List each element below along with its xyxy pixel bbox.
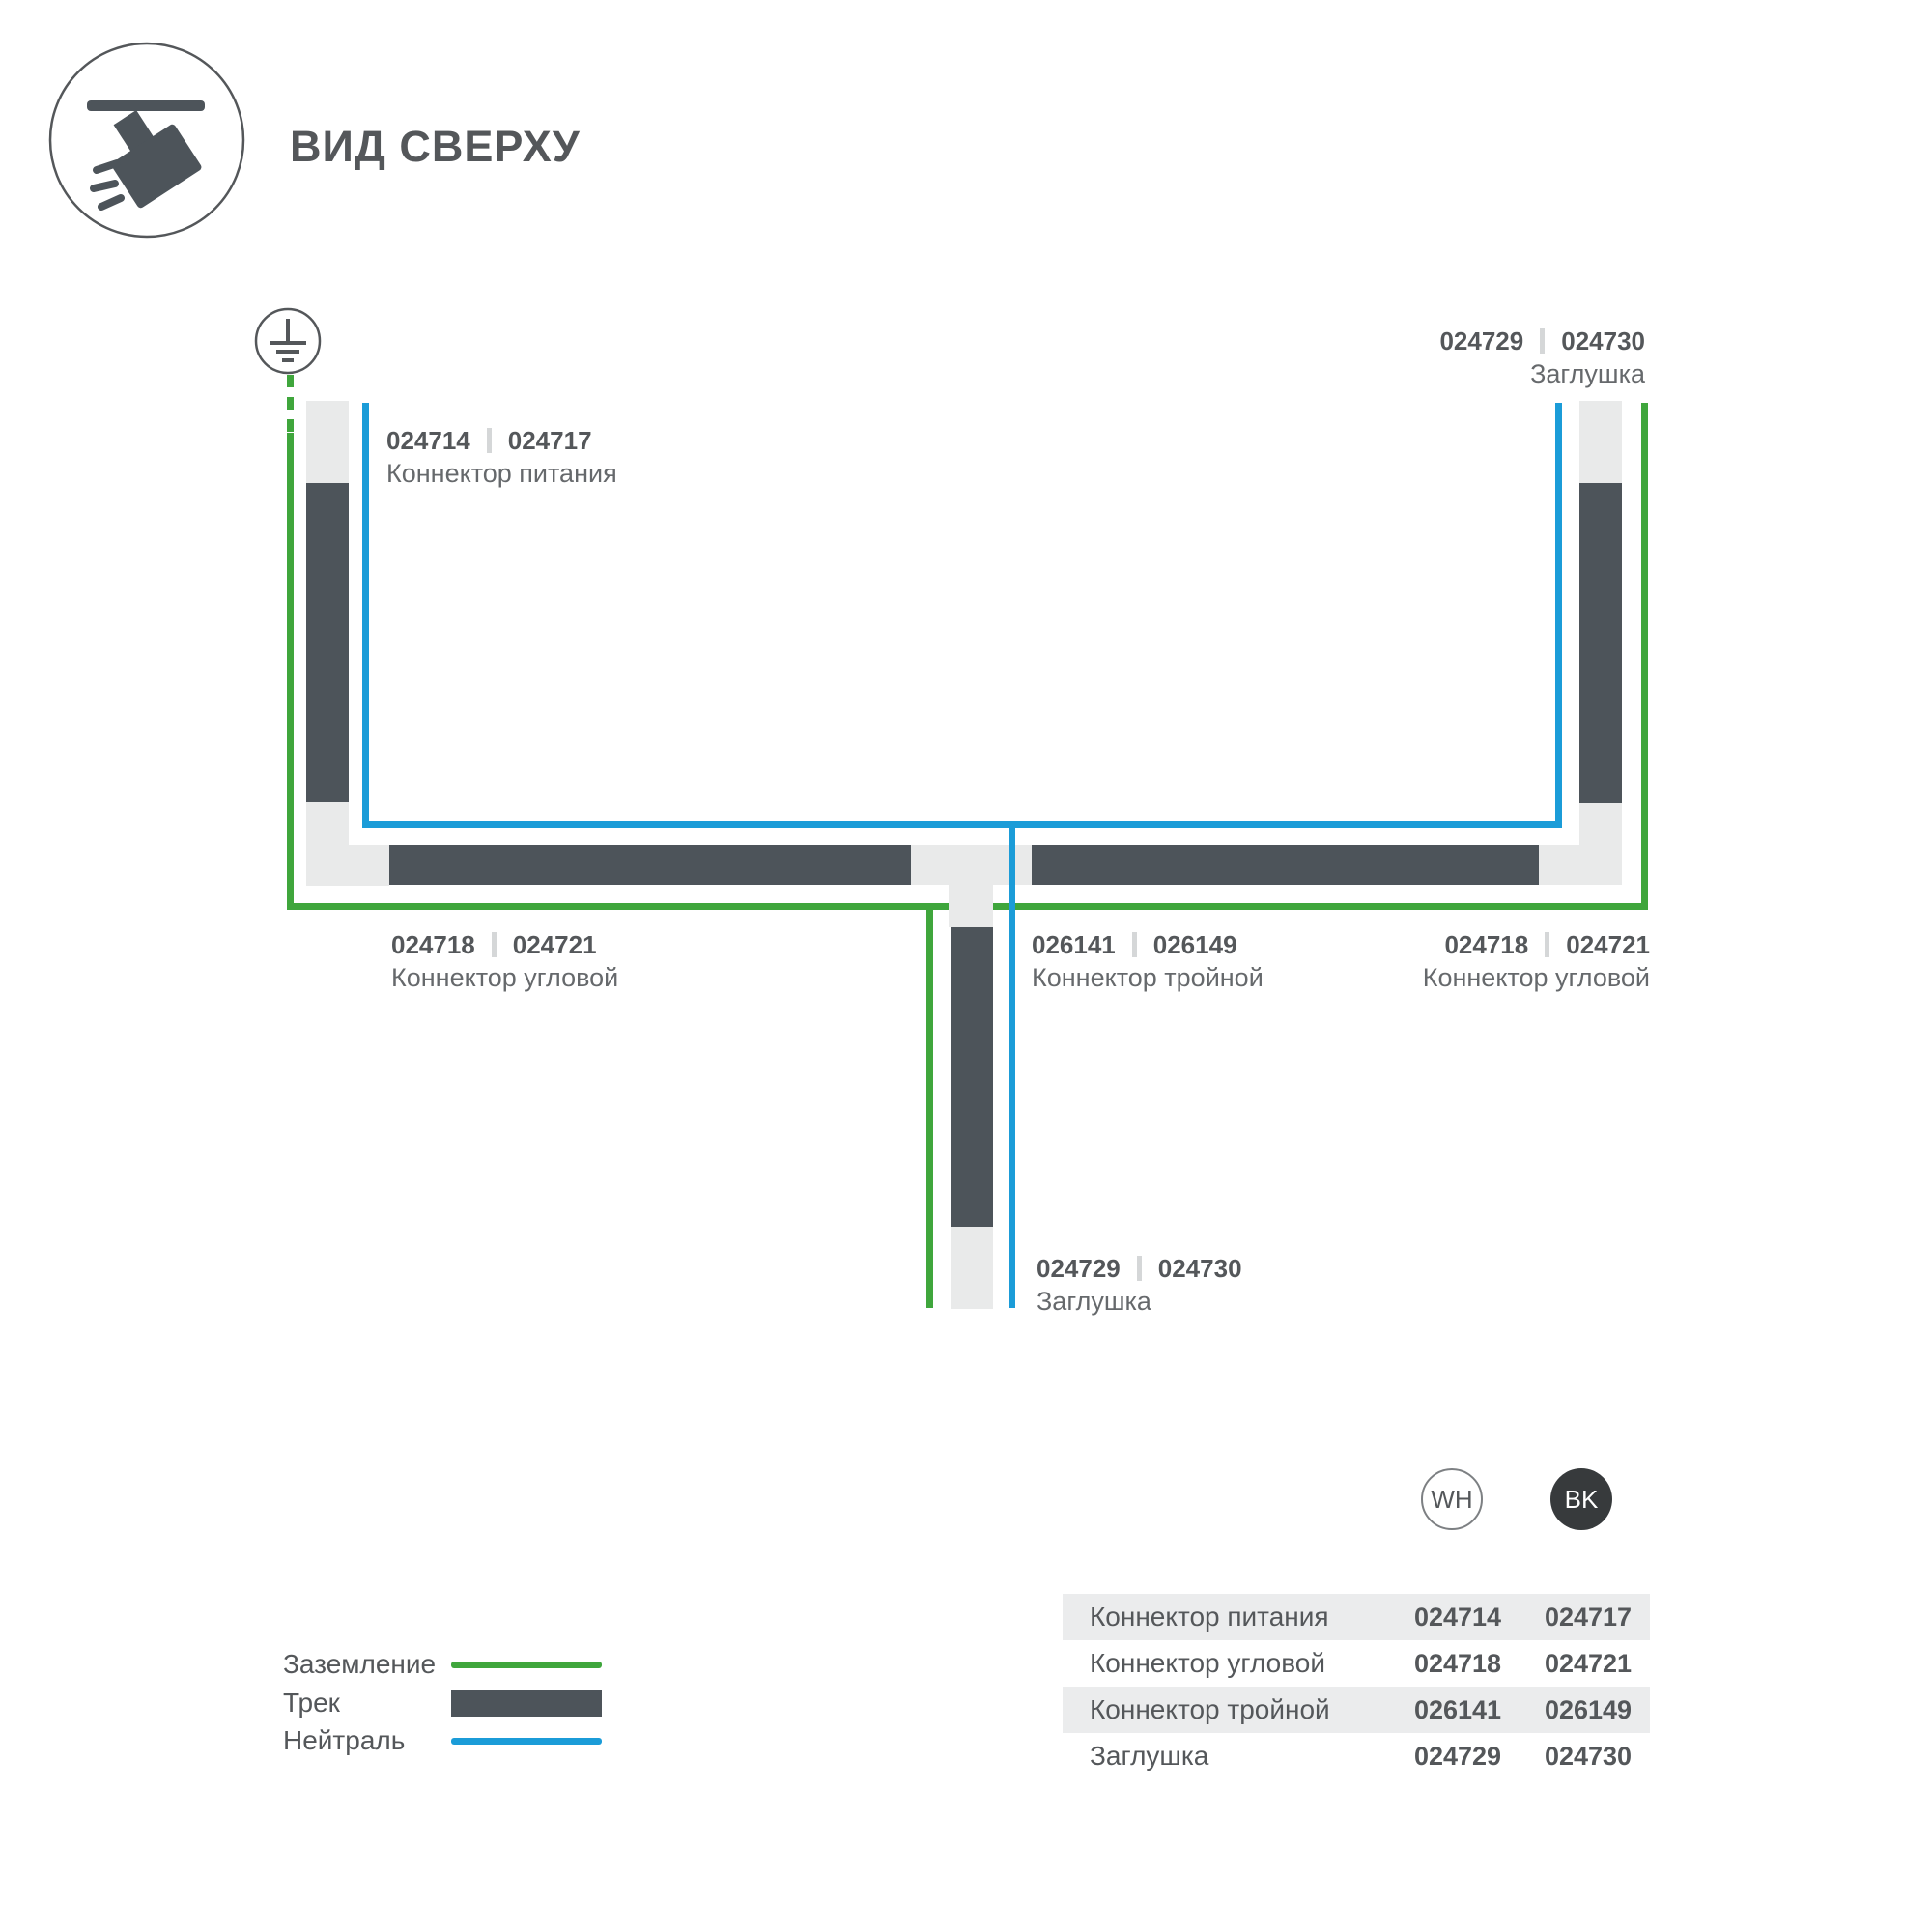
- legend-label-track: Трек: [283, 1687, 340, 1719]
- ground-wire-dashed-segment: [287, 375, 294, 435]
- corner-connector-left-horizontal: [306, 845, 389, 886]
- part-codes: 024714024717: [386, 425, 617, 456]
- row-code-bk: 024717: [1530, 1594, 1646, 1640]
- part-label-corner-connector-right: 024718024721 Коннектор угловой: [1423, 929, 1650, 995]
- part-label-power-connector: 024714024717 Коннектор питания: [386, 425, 617, 491]
- part-label-endcap-top: 024729024730 Заглушка: [1439, 326, 1645, 391]
- page-title: ВИД СВЕРХУ: [290, 122, 581, 172]
- row-code-wh: 024714: [1400, 1594, 1516, 1640]
- page: ВИД СВЕРХУ 024714024717 Коннектор питани…: [0, 0, 1932, 1932]
- part-name: Коннектор угловой: [1423, 960, 1650, 995]
- neutral-wire-branch-vertical: [1009, 821, 1015, 1308]
- divider: [1137, 1256, 1142, 1281]
- row-name: Заглушка: [1090, 1733, 1208, 1779]
- table-row: Коннектор угловой 024718 024721: [1063, 1640, 1650, 1687]
- legend-track-bar: [451, 1690, 602, 1717]
- row-name: Коннектор питания: [1090, 1594, 1329, 1640]
- neutral-wire-left-vertical: [362, 403, 369, 828]
- ground-wire-right-vertical: [1641, 403, 1648, 910]
- part-codes: 024718024721: [391, 929, 618, 960]
- divider: [1545, 932, 1549, 957]
- part-name: Заглушка: [1037, 1284, 1242, 1319]
- row-code-wh: 024718: [1400, 1640, 1516, 1687]
- part-codes: 024729024730: [1037, 1253, 1242, 1284]
- row-code-bk: 024730: [1530, 1733, 1646, 1779]
- divider: [1132, 932, 1137, 957]
- part-label-endcap-bottom: 024729024730 Заглушка: [1037, 1253, 1242, 1319]
- row-code-wh: 026141: [1400, 1687, 1516, 1733]
- legend-label-neutral: Нейтраль: [283, 1724, 405, 1757]
- track-left-vertical: [306, 483, 349, 802]
- track-right-vertical: [1579, 483, 1622, 803]
- track-endcap-bottom: [951, 1227, 993, 1309]
- divider: [492, 932, 497, 957]
- triple-connector-stem: [949, 884, 993, 927]
- ground-wire-branch-vertical: [926, 909, 933, 1308]
- row-name: Коннектор угловой: [1090, 1640, 1325, 1687]
- variant-badge-black: BK: [1550, 1468, 1612, 1530]
- table-row: Коннектор питания 024714 024717: [1063, 1594, 1650, 1640]
- corner-connector-right-vertical: [1579, 803, 1622, 885]
- part-codes: 026141026149: [1032, 929, 1264, 960]
- part-label-triple-connector: 026141026149 Коннектор тройной: [1032, 929, 1264, 995]
- neutral-wire-right-vertical: [1555, 403, 1562, 828]
- legend-label-ground: Заземление: [283, 1648, 436, 1681]
- neutral-wire-horizontal: [362, 821, 1562, 828]
- track-horizontal-left: [389, 845, 911, 885]
- variant-badge-white: WH: [1421, 1468, 1483, 1530]
- divider: [1540, 328, 1545, 354]
- legend-neutral-line: [451, 1738, 602, 1745]
- part-name: Коннектор питания: [386, 456, 617, 491]
- legend-ground-line: [451, 1662, 602, 1668]
- spec-table: Коннектор питания 024714 024717 Коннекто…: [1063, 1594, 1650, 1779]
- track-endcap-top-right: [1579, 401, 1622, 483]
- row-code-bk: 024721: [1530, 1640, 1646, 1687]
- row-code-bk: 026149: [1530, 1687, 1646, 1733]
- part-codes: 024718024721: [1423, 929, 1650, 960]
- row-name: Коннектор тройной: [1090, 1687, 1330, 1733]
- part-name: Коннектор угловой: [391, 960, 618, 995]
- earth-ground-icon: [253, 306, 323, 376]
- track-endcap-top-left: [306, 401, 349, 483]
- table-row: Коннектор тройной 026141 026149: [1063, 1687, 1650, 1733]
- row-code-wh: 024729: [1400, 1733, 1516, 1779]
- table-row: Заглушка 024729 024730: [1063, 1733, 1650, 1779]
- part-label-corner-connector-left: 024718024721 Коннектор угловой: [391, 929, 618, 995]
- track-horizontal-right: [1032, 845, 1539, 885]
- track-bottom-vertical: [951, 927, 993, 1227]
- part-name: Заглушка: [1439, 356, 1645, 391]
- track-spotlight-icon: [46, 41, 247, 241]
- part-name: Коннектор тройной: [1032, 960, 1264, 995]
- divider: [487, 428, 492, 453]
- ground-wire-left-vertical: [287, 433, 294, 910]
- part-codes: 024729024730: [1439, 326, 1645, 356]
